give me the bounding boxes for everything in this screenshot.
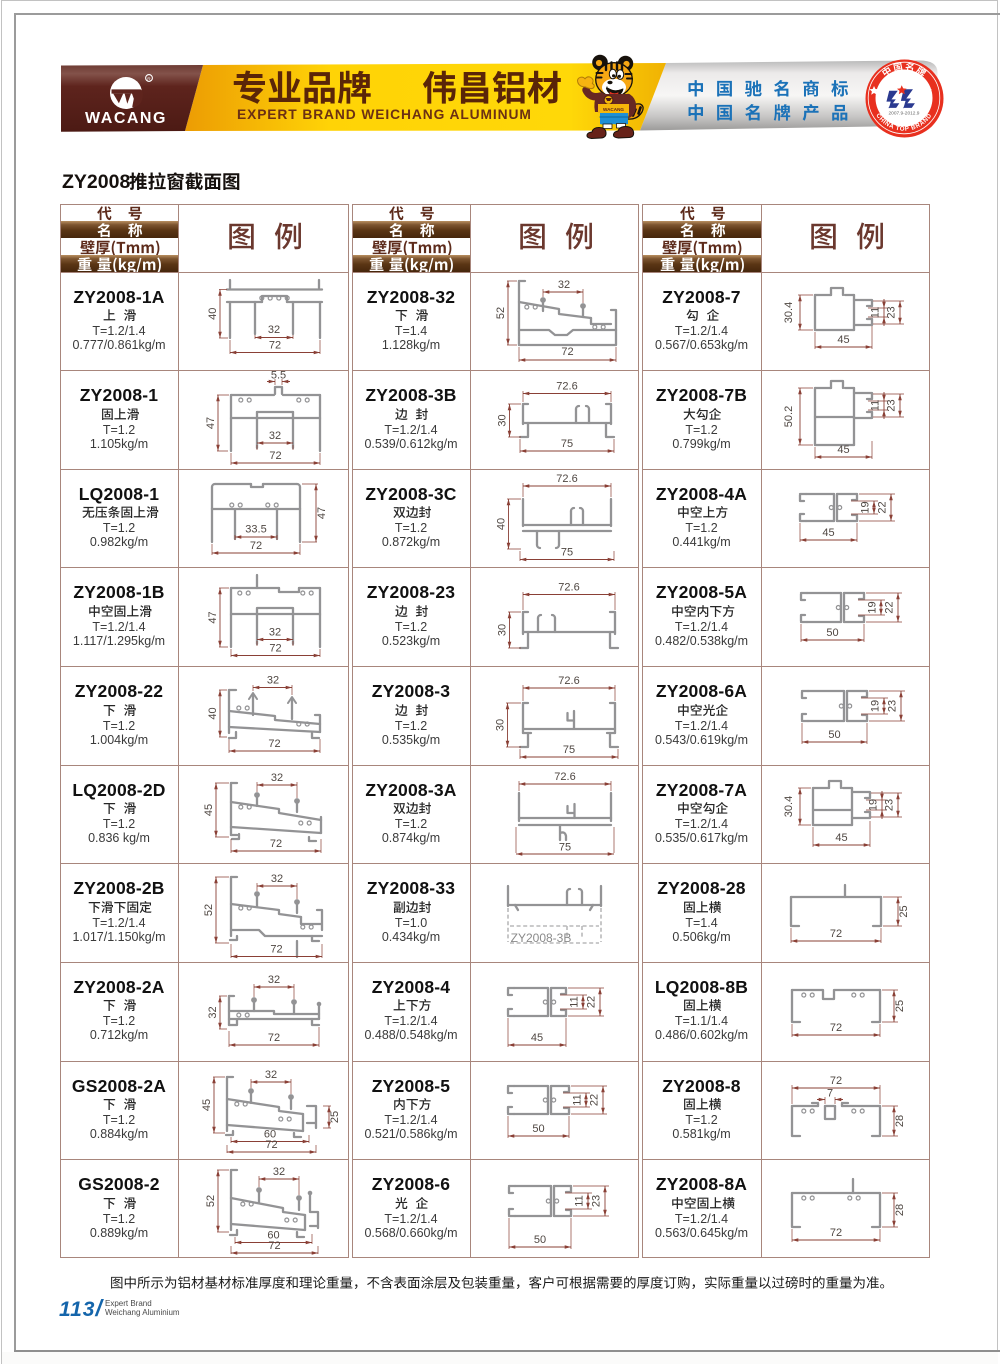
svg-text:32: 32 [268,974,280,986]
svg-text:R: R [147,77,151,83]
svg-text:WACANG: WACANG [603,107,624,112]
svg-text:19: 19 [860,502,872,514]
svg-text:47: 47 [316,507,328,519]
svg-text:72: 72 [250,540,262,552]
svg-text:32: 32 [273,1166,285,1178]
svg-text:72: 72 [270,838,282,850]
svg-text:72: 72 [269,642,281,654]
svg-text:WACANG: WACANG [85,110,167,127]
svg-text:25: 25 [898,905,910,917]
svg-text:72: 72 [270,943,282,955]
svg-text:32: 32 [267,674,279,686]
svg-text:72: 72 [268,1032,280,1044]
svg-text:52: 52 [495,307,507,319]
svg-text:2007.9-2012.9: 2007.9-2012.9 [889,111,920,117]
svg-text:30: 30 [497,414,509,426]
svg-text:25: 25 [329,1111,341,1123]
svg-text:22: 22 [589,1094,601,1106]
svg-text:33.5: 33.5 [245,524,266,536]
svg-text:28: 28 [894,1203,906,1215]
svg-text:19: 19 [870,699,882,711]
svg-text:75: 75 [561,547,573,559]
svg-text:25: 25 [894,1000,906,1012]
svg-text:EXPERT BRAND WEICHANG ALUMINUM: EXPERT BRAND WEICHANG ALUMINUM [237,107,532,122]
svg-text:72: 72 [268,738,280,750]
svg-text:50.2: 50.2 [783,405,795,426]
svg-text:23: 23 [884,799,896,811]
svg-text:11: 11 [572,1094,584,1105]
svg-text:45: 45 [531,1032,543,1044]
svg-text:45: 45 [835,832,847,844]
svg-text:7: 7 [827,1088,833,1100]
svg-text:45: 45 [837,334,849,346]
svg-text:32: 32 [271,873,283,885]
svg-text:22: 22 [586,996,598,1008]
svg-text:23: 23 [887,699,899,711]
svg-text:32: 32 [207,1007,219,1019]
svg-text:32: 32 [558,279,570,291]
svg-text:11: 11 [574,1195,586,1206]
svg-text:72: 72 [561,346,573,358]
svg-text:40: 40 [207,707,219,719]
svg-text:30: 30 [497,624,509,636]
svg-text:72.6: 72.6 [556,473,577,485]
svg-text:72.6: 72.6 [558,675,579,687]
svg-text:32: 32 [265,1069,277,1081]
svg-text:50: 50 [828,729,840,741]
svg-text:52: 52 [203,904,215,916]
svg-text:32: 32 [269,430,281,442]
svg-text:72.6: 72.6 [554,771,575,783]
svg-text:40: 40 [496,518,508,530]
svg-text:72: 72 [269,340,281,352]
svg-text:19: 19 [868,799,880,811]
svg-text:40: 40 [207,308,219,320]
svg-text:72.6: 72.6 [556,380,577,392]
svg-text:11: 11 [870,307,882,318]
svg-text:45: 45 [837,444,849,456]
svg-text:75: 75 [559,842,571,854]
svg-text:72: 72 [830,928,842,940]
svg-text:22: 22 [884,601,896,613]
svg-text:47: 47 [207,611,219,623]
svg-text:32: 32 [268,324,280,336]
svg-text:75: 75 [561,438,573,450]
svg-text:22: 22 [877,502,889,514]
svg-text:11: 11 [870,399,882,410]
svg-text:45: 45 [201,1099,213,1111]
svg-text:50: 50 [532,1123,544,1135]
svg-text:72: 72 [269,450,281,462]
svg-text:50: 50 [534,1234,546,1246]
svg-text:72: 72 [830,1227,842,1239]
svg-text:19: 19 [867,601,879,613]
svg-text:32: 32 [271,772,283,784]
svg-text:ZY2008-3B: ZY2008-3B [511,931,572,945]
svg-text:45: 45 [822,527,834,539]
svg-text:30: 30 [495,718,507,730]
svg-text:50: 50 [826,627,838,639]
svg-text:45: 45 [203,804,215,816]
svg-text:52: 52 [205,1194,217,1206]
svg-text:30.4: 30.4 [783,302,795,323]
svg-text:72.6: 72.6 [558,581,579,593]
svg-text:72: 72 [265,1139,277,1151]
svg-text:72: 72 [830,1075,842,1087]
svg-text:30.4: 30.4 [783,796,795,817]
svg-text:23: 23 [591,1194,603,1206]
svg-text:72: 72 [830,1022,842,1034]
svg-text:72: 72 [268,1240,280,1252]
svg-text:5.5: 5.5 [271,371,286,382]
svg-text:11: 11 [569,997,581,1008]
svg-text:23: 23 [886,399,898,411]
svg-text:75: 75 [563,744,575,756]
svg-text:28: 28 [894,1115,906,1127]
svg-text:23: 23 [886,306,898,318]
svg-text:47: 47 [205,416,217,428]
svg-text:32: 32 [269,626,281,638]
